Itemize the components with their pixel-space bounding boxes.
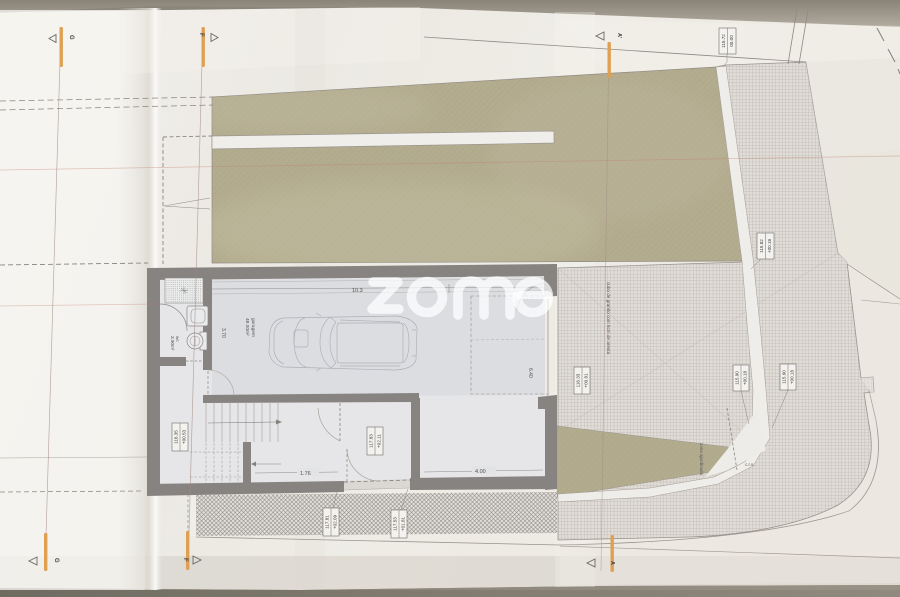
- svg-text:115.72: 115.72: [721, 34, 726, 48]
- svg-text:3.70: 3.70: [220, 328, 226, 338]
- svg-text:116.35: 116.35: [174, 430, 179, 444]
- svg-text:G: G: [68, 35, 74, 40]
- svg-text:1.76: 1.76: [300, 471, 311, 477]
- svg-text:+00.18: +00.18: [767, 238, 772, 253]
- svg-text:+02.11: +02.11: [376, 434, 381, 448]
- svg-text:A': A': [616, 33, 622, 39]
- svg-text:115.90: 115.90: [782, 370, 787, 384]
- svg-text:+01.81: +01.81: [400, 516, 405, 531]
- svg-text:cubo de granito com 5cm de are: cubo de granito com 5cm de aresta: [606, 282, 611, 354]
- svg-text:117.81: 117.81: [325, 515, 330, 529]
- svg-text:garagem: garagem: [250, 318, 256, 337]
- svg-text:+00.81: +00.81: [583, 373, 588, 388]
- svg-text:115.90: 115.90: [735, 371, 740, 385]
- svg-text:10.3: 10.3: [352, 288, 363, 294]
- svg-text:117.83: 117.83: [369, 434, 374, 448]
- svg-text:00.00: 00.00: [729, 35, 734, 47]
- svg-text:A: A: [609, 561, 615, 565]
- svg-text:+00.18: +00.18: [789, 369, 794, 384]
- svg-text:G: G: [53, 558, 59, 563]
- svg-text:+02.09: +02.09: [332, 514, 337, 529]
- svg-text:F: F: [198, 33, 204, 37]
- svg-text:F: F: [182, 558, 188, 562]
- svg-text:3.90m²: 3.90m²: [170, 336, 175, 351]
- svg-text:zona ajardinada: zona ajardinada: [699, 443, 704, 476]
- svg-text:4.00: 4.00: [475, 469, 486, 475]
- svg-text:117.53: 117.53: [393, 517, 398, 531]
- svg-text:48.00m²: 48.00m²: [244, 318, 250, 336]
- svg-text:+00.18: +00.18: [742, 370, 747, 385]
- svg-text:6.40: 6.40: [527, 368, 533, 378]
- svg-text:116.33: 116.33: [576, 373, 581, 387]
- svg-text:+00.53: +00.53: [181, 429, 186, 444]
- svg-text:c.r.s.: c.r.s.: [745, 462, 755, 467]
- svg-text:115.82: 115.82: [759, 239, 764, 253]
